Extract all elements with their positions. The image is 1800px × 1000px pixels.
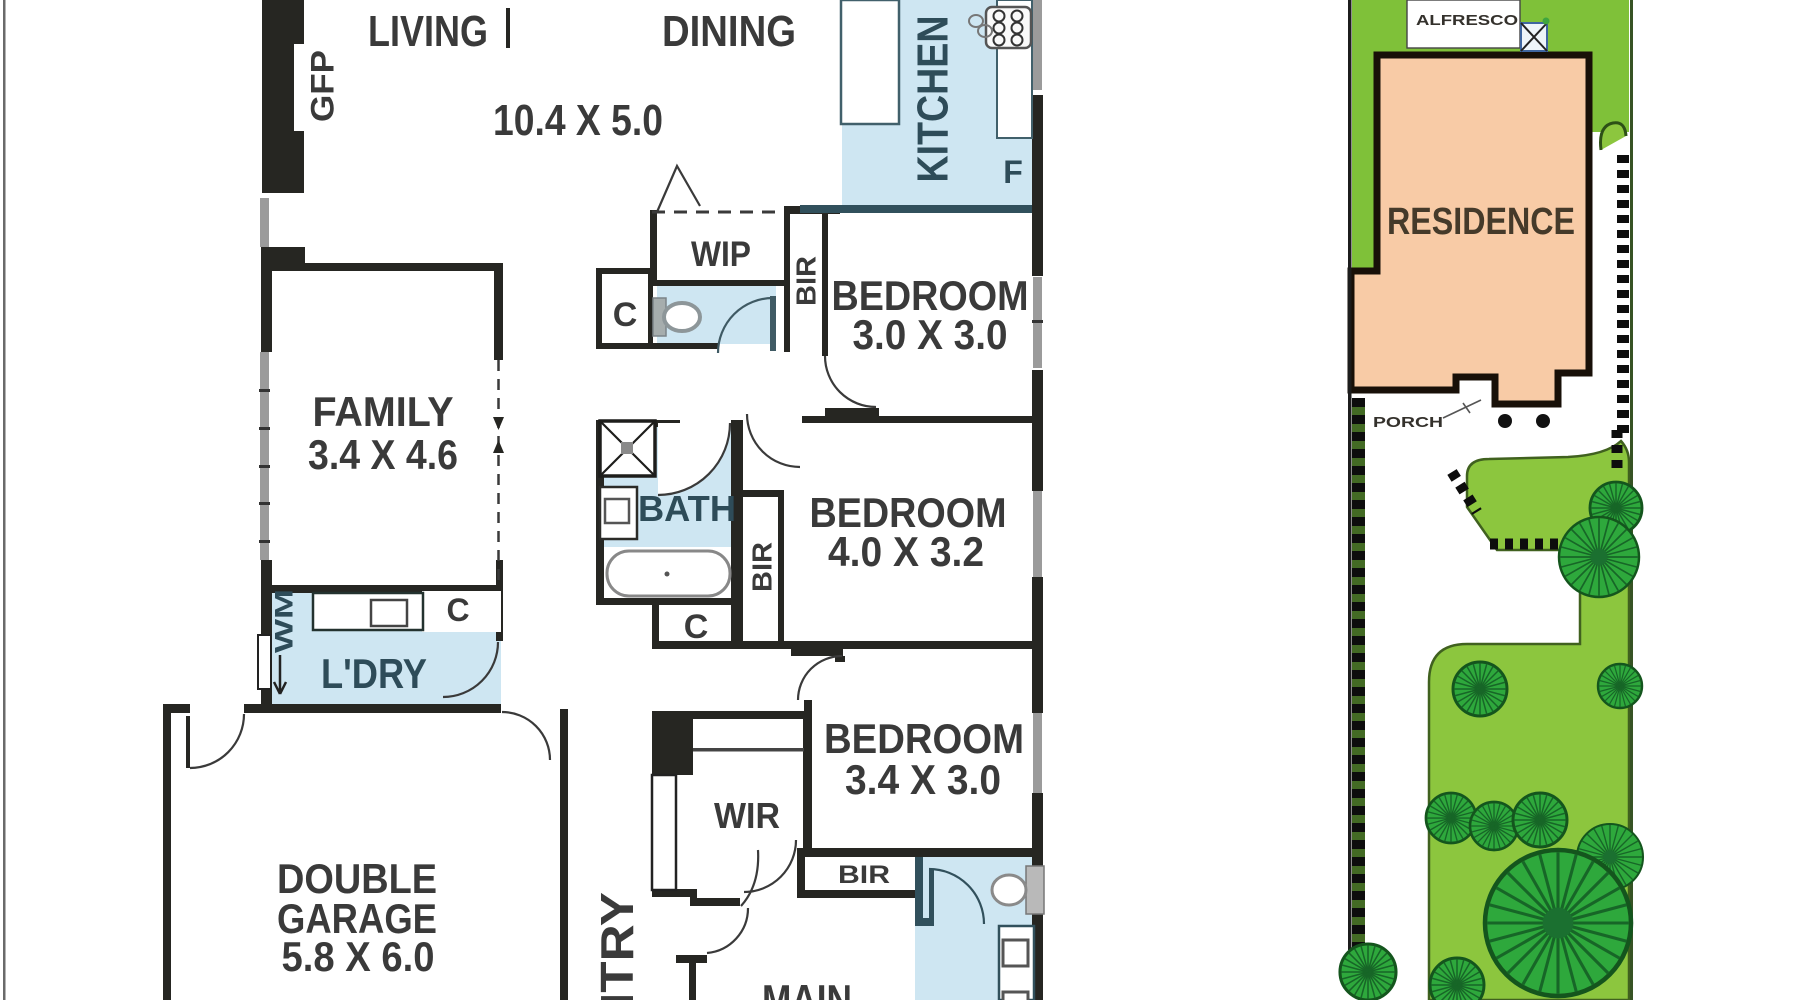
svg-text:F: F [1003,154,1023,190]
svg-text:MAIN: MAIN [762,976,852,1000]
svg-text:GFP: GFP [304,50,340,122]
svg-text:WIP: WIP [691,235,751,274]
svg-text:3.4 X 3.0: 3.4 X 3.0 [845,756,1001,803]
svg-text:DINING: DINING [662,7,796,56]
svg-text:4.0 X 3.2: 4.0 X 3.2 [828,528,984,575]
svg-text:KITCHEN: KITCHEN [909,16,958,183]
svg-text:10.4 X 5.0: 10.4 X 5.0 [493,96,663,145]
svg-text:L'DRY: L'DRY [321,650,427,697]
svg-text:ALFRESCO: ALFRESCO [1416,12,1518,29]
svg-text:BEDROOM: BEDROOM [824,715,1024,762]
svg-text:LIVING: LIVING [368,7,488,56]
svg-text:BATH: BATH [638,488,736,529]
svg-text:FAMILY: FAMILY [313,388,454,435]
svg-text:ENTRY: ENTRY [591,892,643,1000]
svg-text:5.8 X 6.0: 5.8 X 6.0 [282,933,435,980]
svg-text:PORCH: PORCH [1373,414,1443,431]
svg-text:BIR: BIR [838,861,890,889]
svg-text:BIR: BIR [790,256,821,306]
svg-text:C: C [613,296,638,334]
svg-text:RESIDENCE: RESIDENCE [1387,201,1575,243]
svg-text:BIR: BIR [746,542,777,592]
svg-text:C: C [446,592,469,628]
svg-text:3.0 X 3.0: 3.0 X 3.0 [853,311,1008,358]
svg-text:C: C [684,608,709,646]
svg-text:3.4 X 4.6: 3.4 X 4.6 [308,431,458,478]
svg-text:WIR: WIR [714,795,780,836]
svg-text:WM: WM [271,589,299,653]
